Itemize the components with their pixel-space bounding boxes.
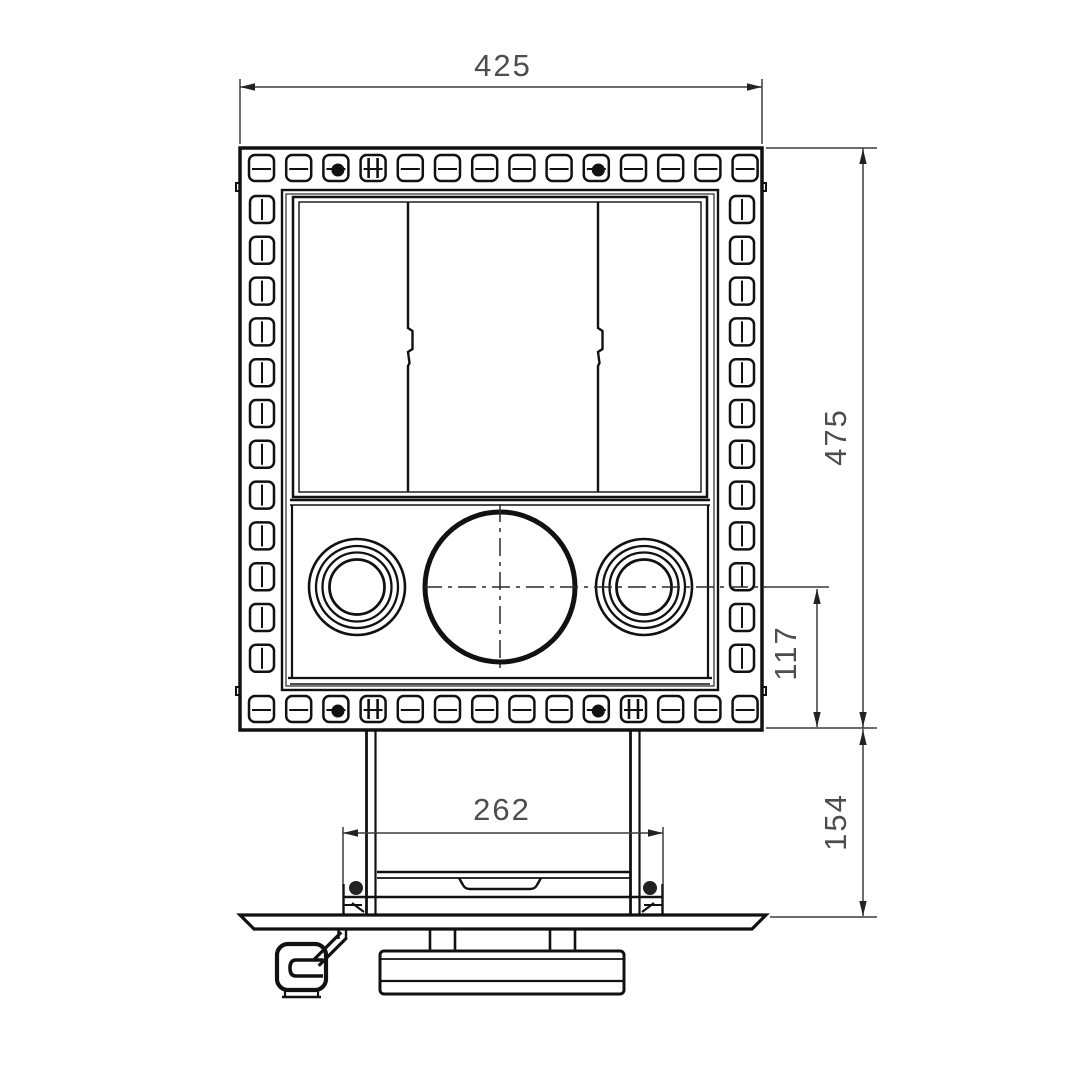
tray-clip xyxy=(459,878,541,889)
pane-divider-left xyxy=(408,202,413,492)
stove-body xyxy=(236,148,766,730)
dimension-117: 117 xyxy=(764,587,829,727)
dim-154-label: 154 xyxy=(818,793,853,851)
dimension-154: 154 xyxy=(770,729,877,917)
dim-475-label: 475 xyxy=(818,408,853,466)
technical-drawing-page: 425 475 117 154 262 xyxy=(0,0,1080,1080)
technical-drawing-svg: 425 475 117 154 262 xyxy=(0,0,1080,1080)
pane-divider-right xyxy=(598,202,603,492)
window-panels xyxy=(293,197,707,497)
perforated-frame xyxy=(249,155,758,722)
door-handle xyxy=(277,929,346,997)
dim-117-label: 117 xyxy=(768,625,803,680)
dim-262-label: 262 xyxy=(473,792,531,827)
handle-knob xyxy=(277,944,326,990)
left-foot-bolt xyxy=(349,881,363,895)
control-circles-panel xyxy=(288,500,766,684)
right-foot-bolt xyxy=(643,881,657,895)
dimension-262: 262 xyxy=(343,792,663,884)
dimension-425: 425 xyxy=(240,48,762,144)
pedestal-base xyxy=(380,929,624,994)
left-control-knob-circles xyxy=(309,539,405,635)
dim-425-label: 425 xyxy=(474,48,532,83)
base-plate xyxy=(240,915,766,929)
